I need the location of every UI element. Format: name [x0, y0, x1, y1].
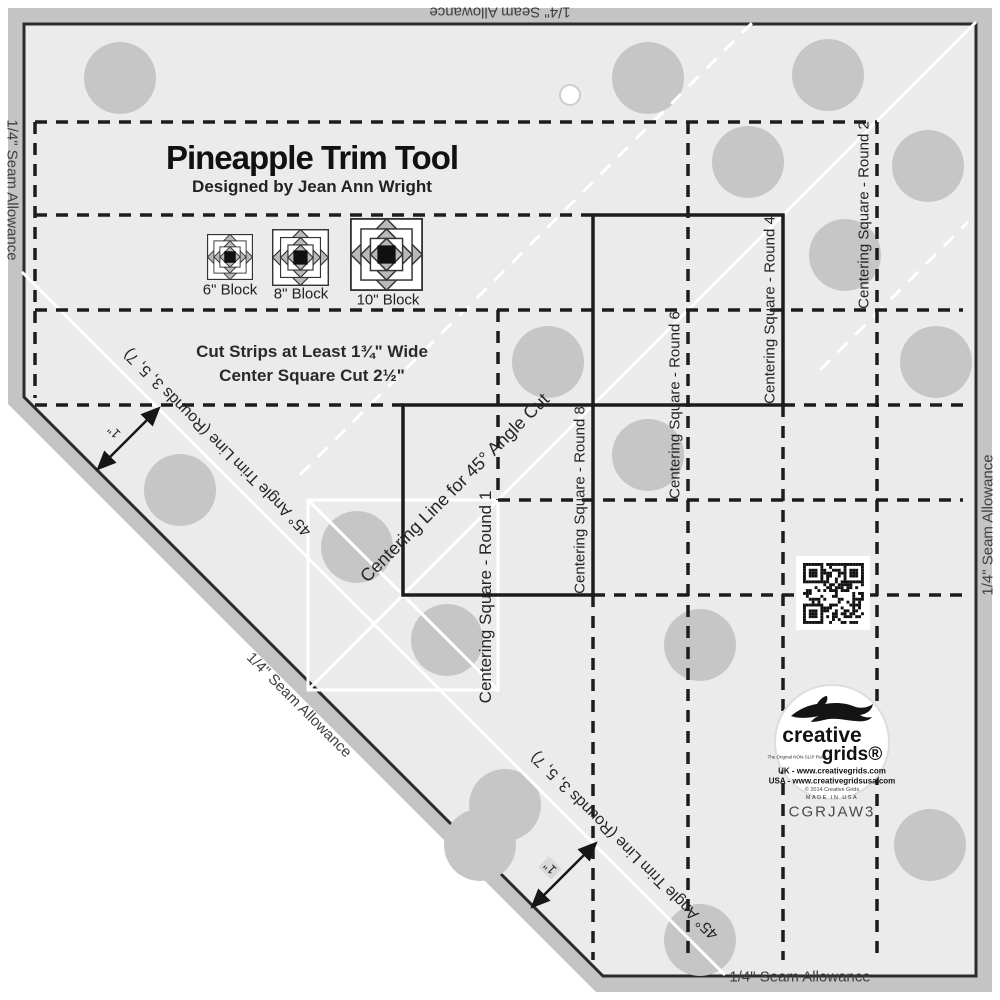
brand-made-in: MADE IN USA [806, 795, 858, 801]
seam-label-top: 1/4" Seam Allowance [429, 4, 570, 21]
block-10-diagram [351, 219, 423, 291]
product-sku: CGRJAW3 [789, 804, 876, 821]
seam-label-right: 1/4" Seam Allowance [980, 454, 997, 595]
cut-strips-instruction: Cut Strips at Least 1¾" Wide [196, 342, 428, 362]
block-8-label: 8" Block [274, 286, 329, 303]
round1-label: Centering Square - Round 1 [476, 491, 496, 704]
block-10-label: 10" Block [357, 292, 420, 309]
seam-label-bottom: 1/4" Seam Allowance [729, 969, 870, 986]
block-6-diagram [207, 234, 252, 279]
block-6-label: 6" Block [203, 282, 258, 299]
qr-code [796, 556, 870, 630]
round2-label: Centering Square - Round 2 [856, 121, 873, 309]
brand-url-usa: USA - www.creativegridsusa.com [769, 777, 896, 786]
block-8-diagram [273, 230, 329, 286]
product-subtitle: Designed by Jean Ann Wright [192, 177, 432, 197]
round6-label: Centering Square - Round 6 [667, 311, 684, 499]
center-square-instruction: Center Square Cut 2½" [219, 366, 405, 386]
brand-tagline: The Original NON-SLIP Ruler [768, 755, 827, 760]
seam-label-left: 1/4" Seam Allowance [4, 119, 21, 260]
round4-label: Centering Square - Round 4 [762, 216, 779, 404]
brand-url-uk: UK - www.creativegrids.com [778, 767, 886, 776]
hanging-hole [560, 85, 580, 105]
ruler-graphics [0, 0, 1000, 1000]
pineapple-trim-tool-ruler: Pineapple Trim Tool Designed by Jean Ann… [0, 0, 1000, 1000]
brand-copyright: © 2014 Creative Grids [805, 787, 860, 793]
brand-name-bottom: grids® [822, 744, 882, 766]
product-title: Pineapple Trim Tool [166, 139, 458, 177]
round8-label: Centering Square - Round 8 [572, 406, 589, 594]
